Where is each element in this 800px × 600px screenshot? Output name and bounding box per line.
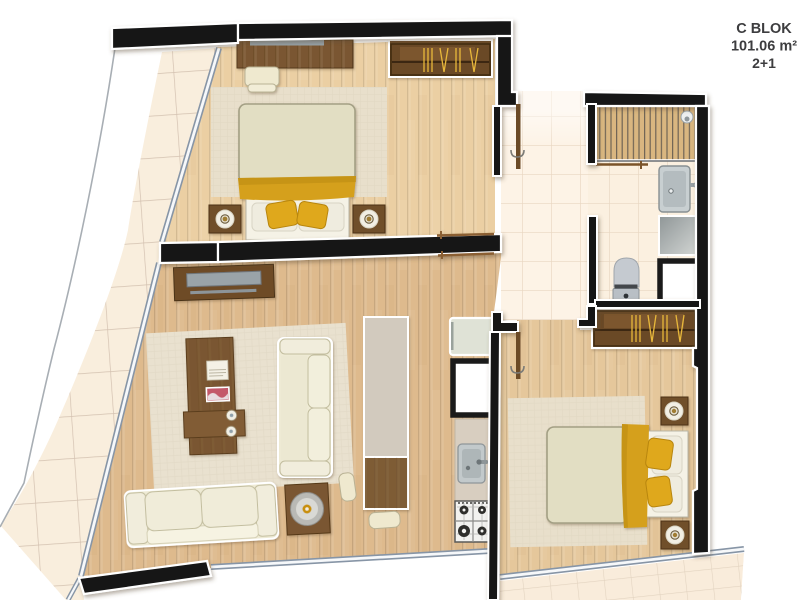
svg-text:C BLOK: C BLOK: [736, 21, 792, 37]
svg-text:101.06 m²: 101.06 m²: [731, 39, 797, 55]
svg-text:2+1: 2+1: [752, 55, 776, 71]
